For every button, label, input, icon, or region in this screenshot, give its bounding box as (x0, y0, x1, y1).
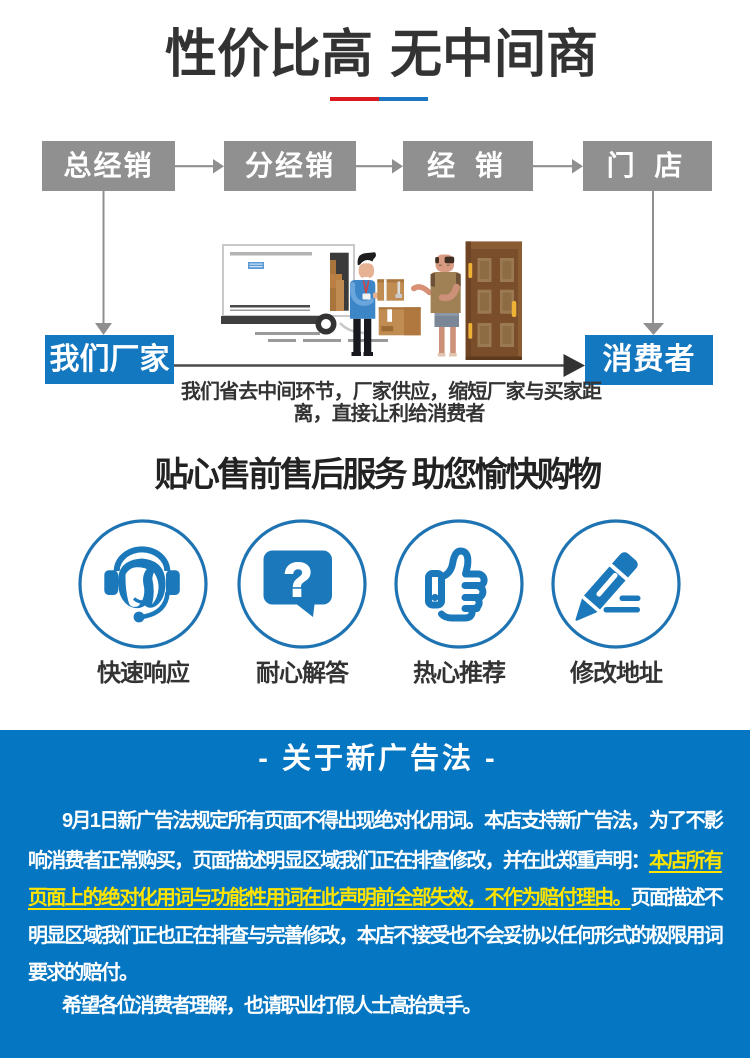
svg-text:?: ? (284, 553, 313, 606)
